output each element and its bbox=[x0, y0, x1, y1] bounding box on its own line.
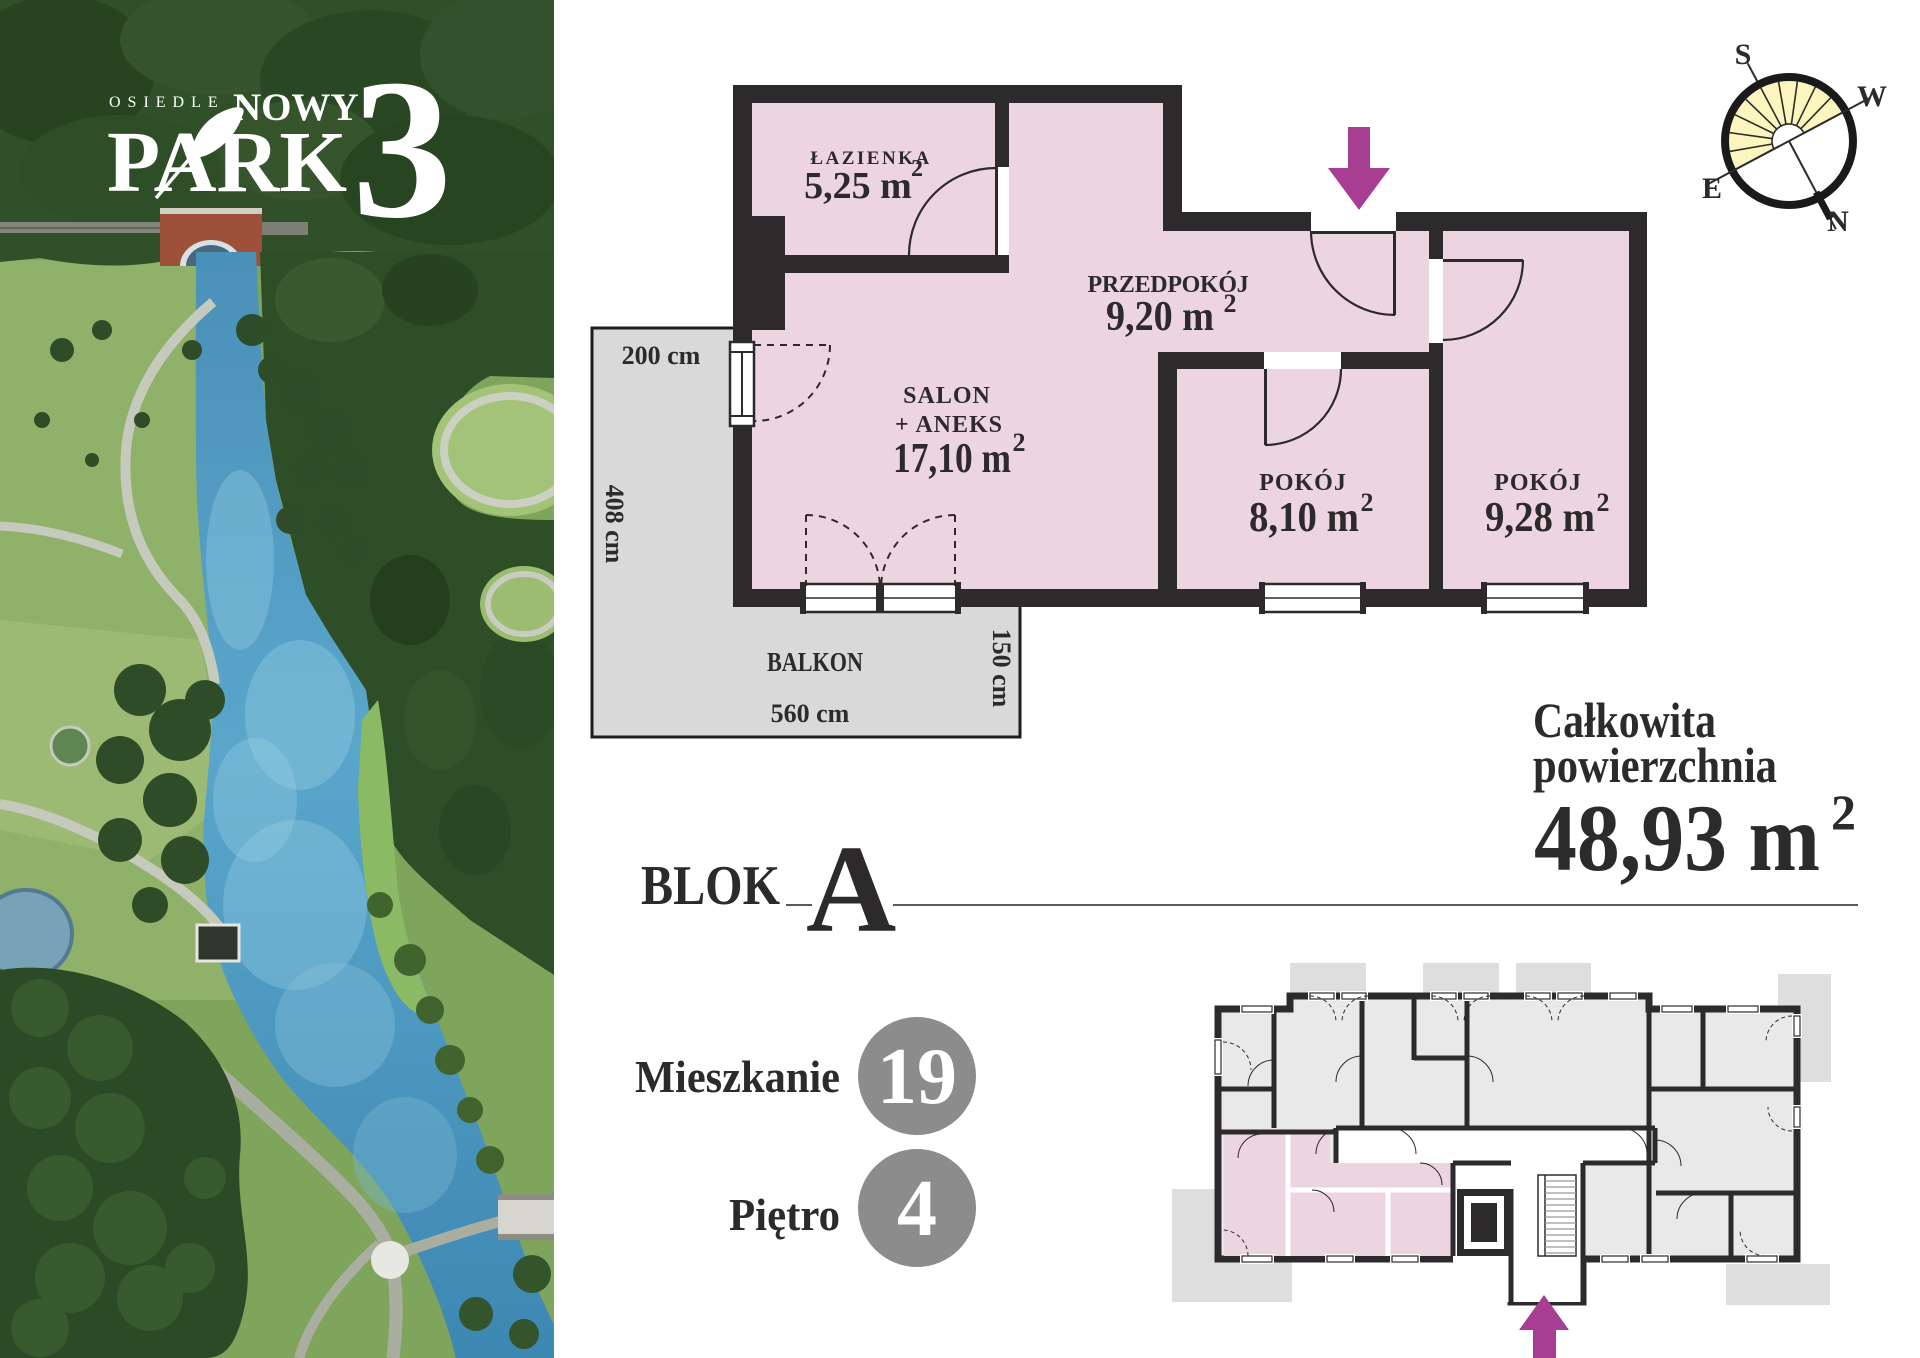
svg-text:9,20 m: 9,20 m bbox=[1106, 294, 1214, 340]
svg-text:17,10 m: 17,10 m bbox=[893, 436, 1011, 482]
svg-text:200 cm: 200 cm bbox=[622, 341, 701, 370]
svg-text:3: 3 bbox=[352, 39, 452, 260]
svg-text:+ ANEKS: + ANEKS bbox=[895, 412, 1003, 438]
svg-text:E: E bbox=[1702, 172, 1722, 205]
svg-text:BLOK: BLOK bbox=[641, 855, 780, 917]
svg-text:48,93 m: 48,93 m bbox=[1534, 785, 1820, 891]
svg-text:POKÓJ: POKÓJ bbox=[1494, 469, 1582, 496]
svg-text:POKÓJ: POKÓJ bbox=[1259, 469, 1347, 496]
svg-text:W: W bbox=[1857, 80, 1887, 113]
svg-text:150 cm: 150 cm bbox=[987, 629, 1016, 708]
svg-text:S: S bbox=[1735, 38, 1752, 71]
svg-text:2: 2 bbox=[911, 156, 923, 182]
svg-text:2: 2 bbox=[1597, 488, 1610, 517]
svg-text:OSIEDLE: OSIEDLE bbox=[109, 94, 225, 111]
svg-text:A: A bbox=[806, 821, 896, 959]
svg-text:408 cm: 408 cm bbox=[600, 485, 629, 564]
svg-text:2: 2 bbox=[1224, 289, 1237, 318]
svg-text:560 cm: 560 cm bbox=[771, 699, 850, 728]
svg-text:Mieszkanie: Mieszkanie bbox=[635, 1051, 840, 1102]
svg-text:2: 2 bbox=[1831, 784, 1856, 840]
svg-text:5,25 m: 5,25 m bbox=[804, 165, 912, 207]
svg-text:2: 2 bbox=[1013, 428, 1026, 457]
svg-text:SALON: SALON bbox=[903, 383, 991, 409]
svg-text:2: 2 bbox=[1361, 488, 1374, 517]
svg-text:4: 4 bbox=[897, 1165, 937, 1253]
svg-text:9,28 m: 9,28 m bbox=[1485, 495, 1595, 541]
svg-text:Piętro: Piętro bbox=[729, 1189, 840, 1240]
svg-text:N: N bbox=[1827, 205, 1849, 238]
svg-text:19: 19 bbox=[877, 1033, 957, 1121]
svg-text:BALKON: BALKON bbox=[767, 647, 863, 677]
svg-text:8,10 m: 8,10 m bbox=[1249, 495, 1359, 541]
